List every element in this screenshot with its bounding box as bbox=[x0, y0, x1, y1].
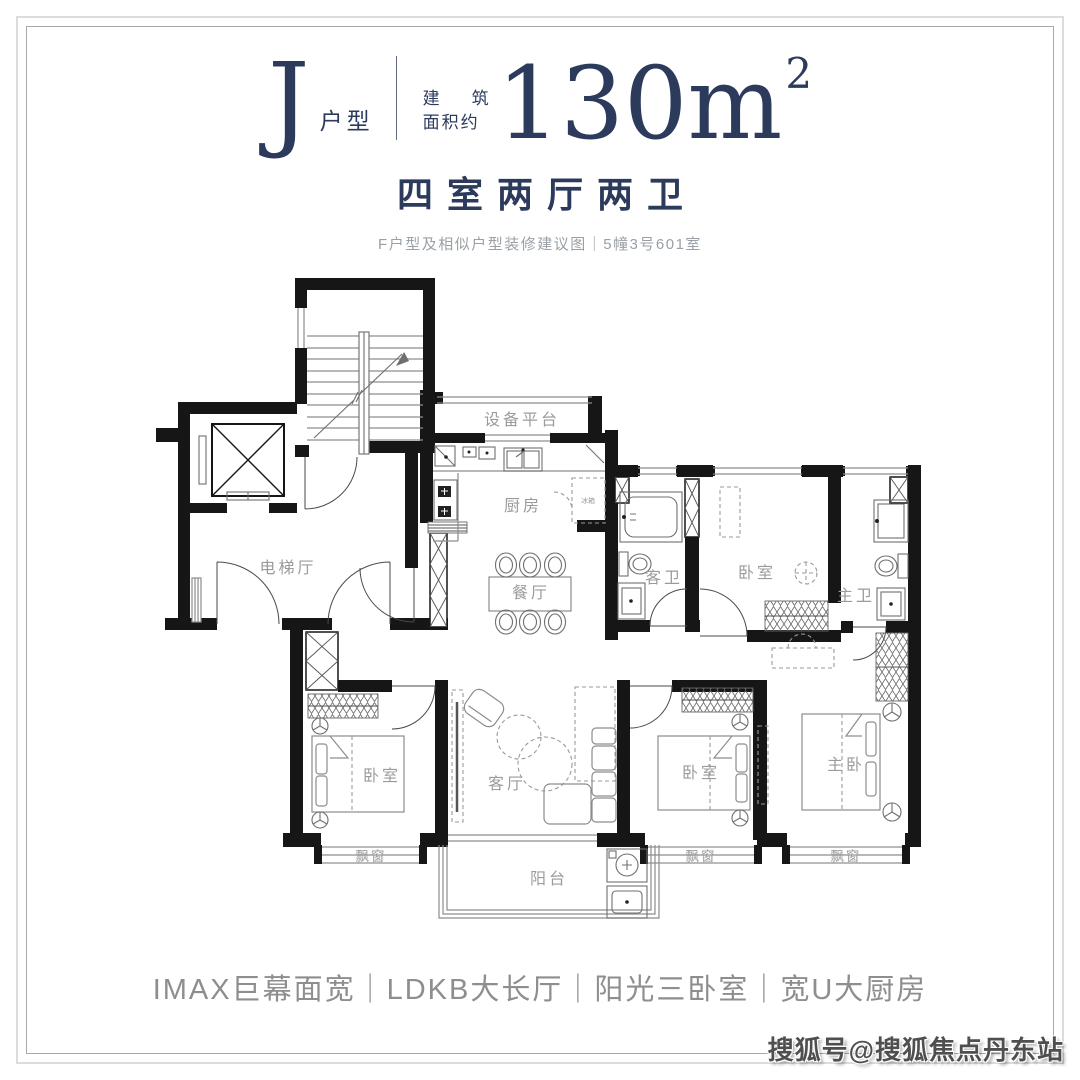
fridge-label: 冰箱 bbox=[581, 496, 595, 505]
area-prefix-line2: 面积约 bbox=[423, 111, 491, 136]
room-label-equipment-platform: 设备平台 bbox=[484, 411, 560, 429]
plan-note: F户型及相似户型装修建议图｜5幢3号601室 bbox=[378, 233, 702, 254]
watermark: 搜狐号@搜狐焦点丹东站 bbox=[768, 1030, 1064, 1067]
room-label-dining: 餐厅 bbox=[512, 584, 550, 602]
unit-title-row: J 户型 建筑 面积约 130m 2 bbox=[268, 56, 812, 144]
double-sink bbox=[504, 448, 542, 471]
title-divider bbox=[396, 56, 397, 140]
room-label-master-bedroom: 主卧 bbox=[827, 756, 865, 774]
floor-plan-svg: 冰箱 bbox=[150, 252, 940, 947]
armchair bbox=[461, 686, 507, 730]
unit-type-suffix: 户型 bbox=[320, 102, 374, 136]
room-label-bay-right: 飘窗 bbox=[831, 848, 862, 864]
room-label-bay-left: 飘窗 bbox=[356, 848, 387, 864]
room-label-elevator-hall: 电梯厅 bbox=[259, 559, 316, 577]
room-label-guest-bath: 客卫 bbox=[645, 569, 683, 587]
room-label-balcony: 阳台 bbox=[530, 870, 568, 888]
living-room-furniture bbox=[452, 686, 616, 824]
guest-bathroom-fixtures bbox=[618, 492, 682, 619]
room-label-bedroom-right: 卧室 bbox=[682, 764, 720, 782]
room-label-bedroom-top: 卧室 bbox=[738, 564, 776, 582]
elevator bbox=[199, 424, 284, 500]
corner-sink bbox=[435, 446, 455, 466]
room-count-line: 四室两厅两卫 bbox=[397, 166, 697, 218]
room-label-kitchen: 厨房 bbox=[504, 497, 542, 515]
header: J 户型 建筑 面积约 130m 2 四室两厅两卫 F户型及相似户型装修建议图｜… bbox=[0, 0, 1080, 254]
sofa bbox=[544, 728, 616, 824]
room-label-bay-mid: 飘窗 bbox=[686, 848, 717, 864]
room-label-master-bath: 主卫 bbox=[837, 587, 875, 605]
room-label-living: 客厅 bbox=[488, 775, 526, 793]
area-superscript: 2 bbox=[785, 49, 812, 98]
room-label-bedroom-left: 卧室 bbox=[363, 767, 401, 785]
fridge: 冰箱 bbox=[554, 478, 605, 523]
sink bbox=[618, 583, 645, 619]
room-labels: 设备平台 厨房 餐厅 电梯厅 客卫 卧室 主卫 卧室 客厅 卧室 主卧 飘窗 飘… bbox=[259, 411, 875, 888]
area-value: 130m bbox=[497, 64, 783, 144]
feature-tagline: IMAX巨幕面宽｜LDKB大长厅｜阳光三卧室｜宽U大厨房 bbox=[0, 966, 1080, 1008]
area-prefix-line1: 建筑 bbox=[423, 87, 491, 112]
balcony-sink bbox=[607, 886, 647, 918]
sink bbox=[877, 588, 905, 620]
bay-windows bbox=[314, 845, 910, 864]
area-prefix: 建筑 面积约 bbox=[423, 87, 491, 136]
master-bathroom-fixtures bbox=[874, 500, 908, 620]
poster-page: J 户型 建筑 面积约 130m 2 四室两厅两卫 F户型及相似户型装修建议图｜… bbox=[0, 0, 1080, 1080]
cooktop bbox=[434, 480, 457, 520]
toilet bbox=[875, 554, 908, 578]
floor-plan: 冰箱 bbox=[150, 252, 940, 947]
stairwell bbox=[307, 332, 423, 454]
unit-letter: J bbox=[268, 59, 310, 144]
